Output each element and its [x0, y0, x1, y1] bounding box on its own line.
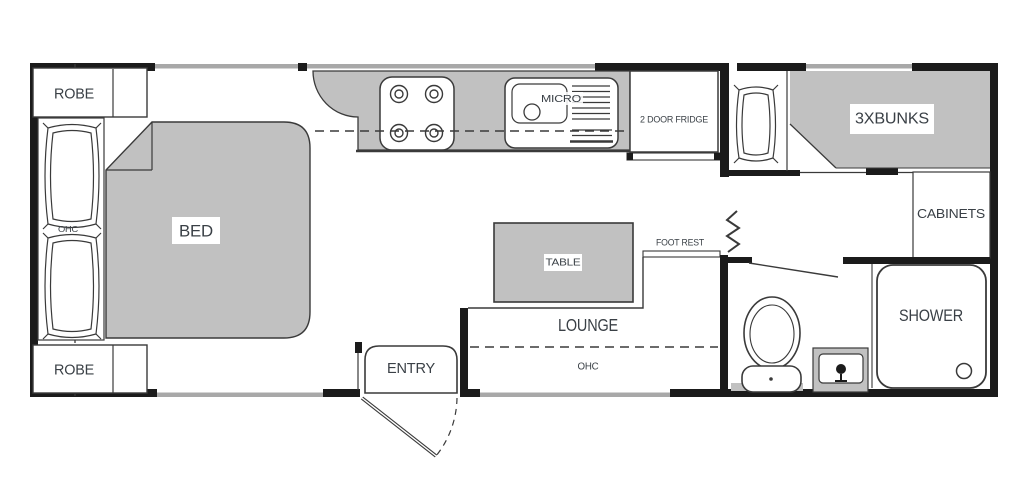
foot-rest-label: FOOT REST — [656, 238, 704, 249]
window-top-left — [155, 63, 298, 71]
foot-rest-edge — [643, 251, 720, 257]
micro-label: MICRO — [541, 93, 581, 105]
bed-label: BED — [179, 222, 213, 241]
cabinets-label: CABINETS — [917, 207, 985, 221]
bathroom-wall-top — [728, 257, 752, 263]
robe-bottom-label: ROBE — [54, 362, 94, 379]
fridge-rail — [627, 153, 720, 160]
bed-ohc-label: OHC — [58, 224, 78, 234]
bunk-base-wall — [720, 170, 800, 176]
entry-jamb — [355, 342, 362, 353]
entry-door-leaf-icon — [362, 398, 436, 456]
bathroom-door-leaf-icon — [749, 263, 838, 277]
floorplan-canvas: ROBE ROBE BED OHC MICRO 2 DOOR FRIDGE 3X… — [0, 0, 1024, 500]
shower-label: SHOWER — [899, 307, 963, 325]
bunk-pillow-icon — [734, 85, 778, 163]
bed-pillow-icon — [43, 233, 101, 339]
window-top-kitchen — [307, 63, 595, 71]
entry-door-swing-arc — [436, 398, 457, 456]
fridge-label: 2 DOOR FRIDGE — [640, 115, 708, 126]
window-top-bunks — [806, 63, 912, 71]
floorplan-drawing: ROBE ROBE BED OHC MICRO 2 DOOR FRIDGE 3X… — [0, 0, 1024, 500]
bunks-label: 3XBUNKS — [855, 111, 929, 128]
bunkroom-divider-wall — [720, 63, 729, 177]
sink-drain-icon — [524, 104, 540, 120]
bunk-base-wall — [866, 168, 898, 175]
fridge-rail-cap — [714, 153, 720, 160]
lounge-label: LOUNGE — [558, 315, 618, 335]
window-bottom-lounge — [480, 389, 670, 397]
bed-pillow-icon — [43, 123, 101, 229]
outer-wall-right — [990, 63, 998, 397]
table-label: TABLE — [546, 258, 582, 269]
zigzag-icon — [727, 211, 739, 252]
lounge-end-wall — [460, 308, 468, 397]
entry-label: ENTRY — [387, 361, 436, 377]
bathroom-wall-left — [720, 255, 728, 397]
lounge-ohc-label: OHC — [578, 362, 599, 373]
bathroom-wall-top — [843, 257, 990, 264]
toilet-icon — [742, 297, 801, 392]
vanity-icon — [813, 348, 868, 392]
window-bottom-bed — [157, 389, 323, 397]
shower-drain-icon — [957, 364, 972, 379]
fridge-rail-cap — [627, 153, 633, 160]
robe-top-label: ROBE — [54, 86, 94, 103]
fridge-box — [630, 71, 718, 152]
stove-icon — [380, 77, 454, 150]
